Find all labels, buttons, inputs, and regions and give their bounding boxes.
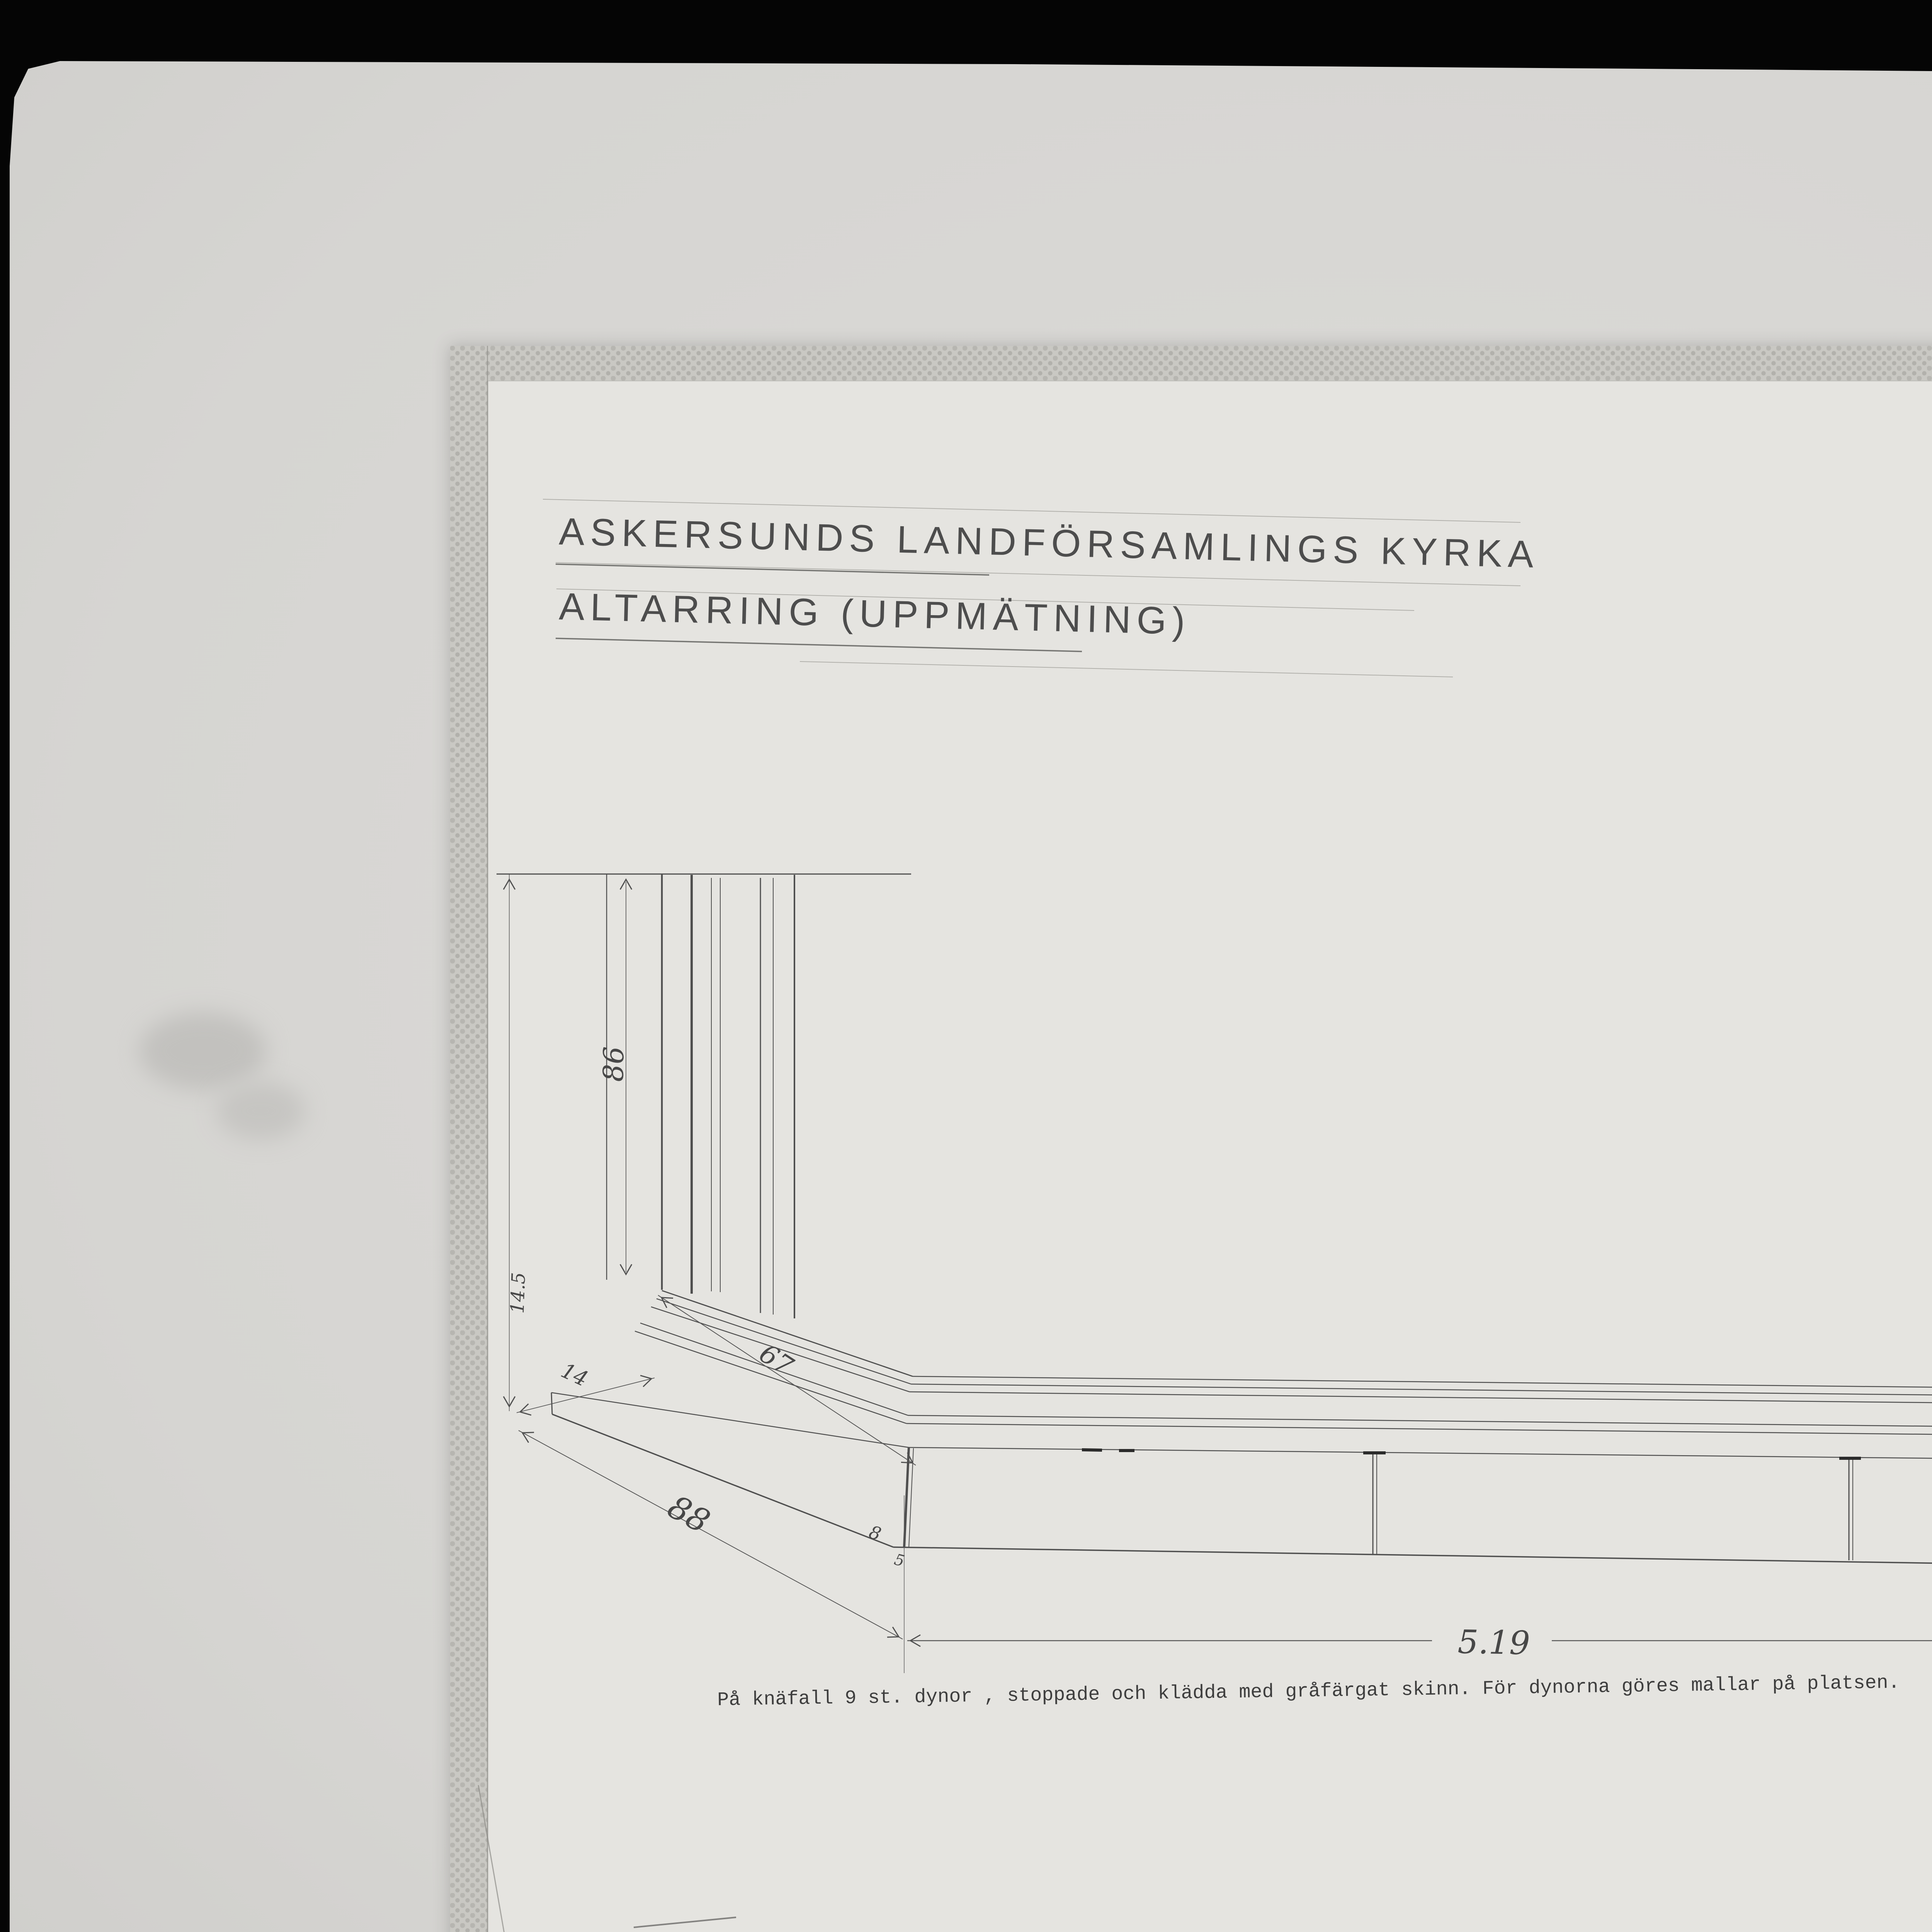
- dim-5-19: 5.19: [1458, 1623, 1531, 1662]
- dim-14-5-left: 14.5: [507, 1272, 530, 1314]
- dim-86: 86: [597, 1046, 630, 1082]
- dim-8: 8: [867, 1521, 884, 1544]
- microfilm-frame: { "sheet": { "page_number": "27.", "arch…: [0, 0, 1932, 1932]
- ink-blobs: [1082, 1389, 1932, 1458]
- main-dimensions: [517, 1293, 1932, 1722]
- sheet-crease: [478, 1785, 520, 1932]
- dim-14: 14: [558, 1358, 592, 1391]
- altar-ring-drawing: 86 14.5 14 67 88 8 5 5.19 mitt. Dyna 9.5…: [0, 0, 1932, 1932]
- archive-number-overline: [634, 1917, 736, 1927]
- front-elevation: [893, 1376, 1932, 1566]
- left-wing-elevation: [497, 874, 911, 1411]
- dim-88: 88: [662, 1488, 716, 1541]
- corner-segment: [551, 1291, 913, 1548]
